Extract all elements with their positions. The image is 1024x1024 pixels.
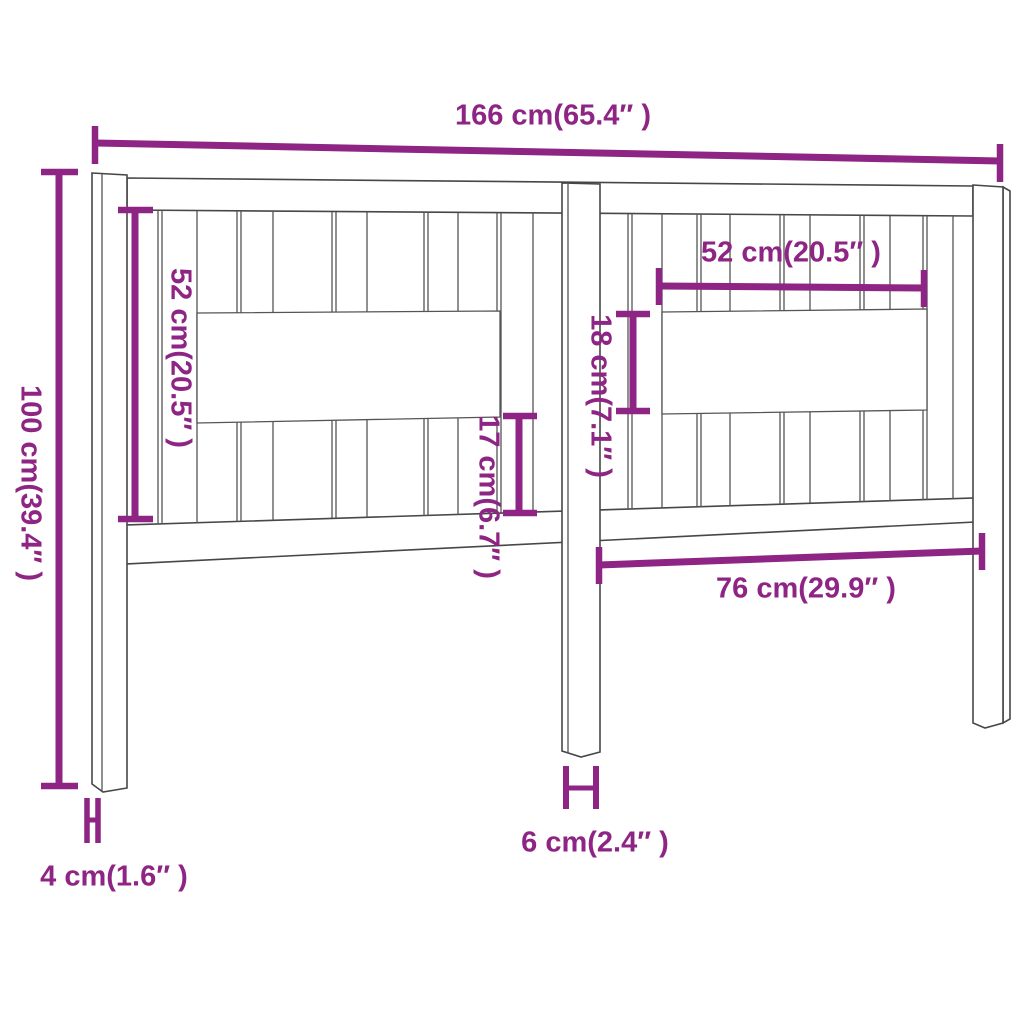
dimension-label-overall-width: 166 cm(65.4″ ) <box>455 102 651 131</box>
dimension-diagram: 166 cm(65.4″ ) 100 cm(39.4″ ) 52 cm(20.5… <box>0 0 1024 1024</box>
right-post <box>973 185 1010 728</box>
dimension-right-window-width-line <box>659 268 924 307</box>
dimension-label-center-leg-width: 6 cm(2.4″ ) <box>521 829 669 858</box>
dimension-center-leg-width-marker <box>566 766 596 809</box>
dimension-label-leg-to-post-span: 76 cm(29.9″ ) <box>716 575 896 604</box>
dimension-label-post-depth: 4 cm(1.6″ ) <box>40 863 188 892</box>
dimension-lower-slat-height-line <box>503 416 537 513</box>
dimension-label-overall-height: 100 cm(39.4″ ) <box>16 385 45 581</box>
dimension-overall-height-line <box>41 172 78 787</box>
right-panel-window <box>662 309 927 414</box>
left-panel-window <box>197 311 500 423</box>
left-post <box>92 173 127 792</box>
top-rail <box>127 178 973 216</box>
dimension-label-right-window-width: 52 cm(20.5″ ) <box>701 239 881 268</box>
dimension-post-depth-marker <box>87 798 98 843</box>
dimension-overall-width-line <box>95 126 1000 182</box>
dimension-label-left-panel-height: 52 cm(20.5″ ) <box>166 268 195 448</box>
dimension-label-right-window-height: 18 cm(7.1″ ) <box>586 314 615 478</box>
dimension-right-window-height-line <box>616 314 650 411</box>
dimension-label-lower-slat-height: 17 cm(6.7″ ) <box>474 415 503 579</box>
